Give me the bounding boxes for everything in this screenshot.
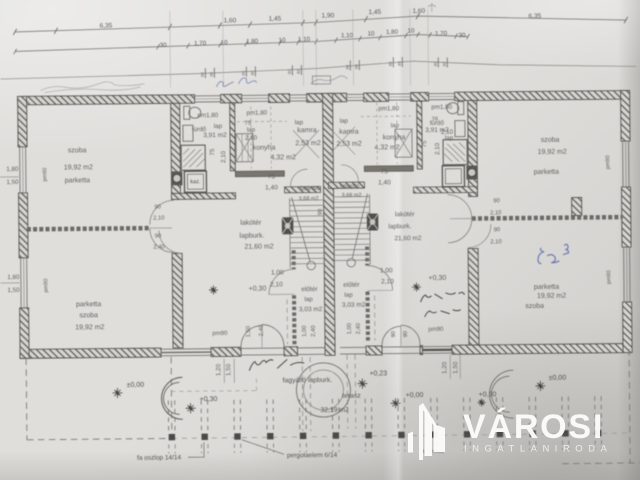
svg-text:pm1,80: pm1,80 xyxy=(197,112,218,119)
svg-text:4,32 m2: 4,32 m2 xyxy=(374,144,399,151)
svg-text:90: 90 xyxy=(494,227,501,233)
svg-text:1,50: 1,50 xyxy=(7,287,20,294)
svg-text:10: 10 xyxy=(408,28,416,35)
svg-text:2,40: 2,40 xyxy=(259,325,265,336)
svg-text:3,03 m2: 3,03 m2 xyxy=(342,302,366,309)
svg-text:lap: lap xyxy=(295,119,304,126)
svg-text:1,60: 1,60 xyxy=(412,8,425,15)
svg-text:75: 75 xyxy=(209,148,216,156)
svg-text:1,40: 1,40 xyxy=(378,179,391,186)
svg-text:19,92 m2: 19,92 m2 xyxy=(538,149,567,156)
svg-text:pm1,80: pm1,80 xyxy=(431,104,452,111)
svg-text:75: 75 xyxy=(268,173,276,180)
svg-text:80: 80 xyxy=(200,72,205,77)
svg-text:10: 10 xyxy=(368,30,376,37)
svg-text:80: 80 xyxy=(241,70,246,75)
svg-text:INGATLANIRODA: INGATLANIRODA xyxy=(464,444,612,455)
svg-text:1,80: 1,80 xyxy=(386,29,399,36)
svg-text:90: 90 xyxy=(318,209,324,216)
svg-text:pm90: pm90 xyxy=(43,279,49,293)
svg-text:1,00: 1,00 xyxy=(271,269,284,276)
svg-text:19,92 m2: 19,92 m2 xyxy=(537,293,566,300)
svg-text:lakótér: lakótér xyxy=(240,220,262,227)
svg-text:80: 80 xyxy=(354,64,359,69)
svg-text:lap: lap xyxy=(304,296,313,303)
svg-text:2,53 m2: 2,53 m2 xyxy=(336,141,361,148)
svg-text:2,40: 2,40 xyxy=(153,244,164,250)
svg-text:90: 90 xyxy=(493,198,500,204)
svg-text:2,10: 2,10 xyxy=(441,129,454,136)
svg-text:19,92 m2: 19,92 m2 xyxy=(75,324,104,331)
svg-text:1,90: 1,90 xyxy=(321,12,334,19)
svg-text:1,80: 1,80 xyxy=(246,38,259,45)
svg-text:1,10: 1,10 xyxy=(341,32,354,39)
svg-text:1,50: 1,50 xyxy=(225,363,232,376)
svg-text:2,40: 2,40 xyxy=(311,325,317,336)
svg-text:parketta: parketta xyxy=(65,177,90,184)
svg-text:1,20: 1,20 xyxy=(215,363,222,376)
svg-text:90: 90 xyxy=(154,205,161,211)
svg-text:2,40: 2,40 xyxy=(356,323,362,334)
svg-text:kamra: kamra xyxy=(297,127,317,134)
svg-text:előtér: előtér xyxy=(301,286,318,293)
svg-text:lakótér: lakótér xyxy=(395,211,415,218)
svg-text:lapburk.: lapburk. xyxy=(388,223,411,230)
svg-text:1,50: 1,50 xyxy=(452,361,459,374)
svg-text:3,68 m2: 3,68 m2 xyxy=(299,196,319,202)
svg-text:1,00: 1,00 xyxy=(380,267,393,274)
svg-text:VÁROSI: VÁROSI xyxy=(463,408,604,446)
svg-text:2,10: 2,10 xyxy=(153,215,164,221)
svg-text:75: 75 xyxy=(381,168,389,175)
svg-text:1,50: 1,50 xyxy=(6,179,19,186)
svg-text:lap: lap xyxy=(344,292,353,299)
svg-text:1,80: 1,80 xyxy=(6,166,19,173)
svg-text:lap: lap xyxy=(214,123,223,130)
svg-text:10: 10 xyxy=(221,39,229,46)
svg-text:3,68 m2: 3,68 m2 xyxy=(342,193,362,199)
svg-text:fa oszlop 14/14: fa oszlop 14/14 xyxy=(137,454,182,461)
svg-text:lap: lap xyxy=(340,118,349,125)
svg-text:fatároló: fatároló xyxy=(300,186,319,192)
svg-text:pm1,80: pm1,80 xyxy=(246,109,267,116)
svg-text:30: 30 xyxy=(459,32,467,39)
svg-text:2,10: 2,10 xyxy=(270,281,283,288)
svg-text:80: 80 xyxy=(433,61,438,66)
svg-text:fagyálló lapburk.: fagyálló lapburk. xyxy=(283,377,333,384)
svg-text:parketta: parketta xyxy=(76,301,101,308)
svg-text:előtér: előtér xyxy=(343,282,360,289)
svg-text:±0,00: ±0,00 xyxy=(549,375,567,382)
svg-text:2,10: 2,10 xyxy=(490,210,501,216)
svg-text:konyha: konyha xyxy=(383,134,406,141)
svg-text:1,70: 1,70 xyxy=(194,40,207,47)
svg-text:fatároló: fatároló xyxy=(340,184,359,190)
svg-text:80: 80 xyxy=(296,68,301,73)
svg-text:2,10: 2,10 xyxy=(434,142,441,155)
svg-text:1,00: 1,00 xyxy=(302,325,308,336)
svg-text:1,60: 1,60 xyxy=(224,17,237,24)
svg-text:lap: lap xyxy=(391,122,400,129)
svg-text:szoba: szoba xyxy=(525,303,544,310)
svg-text:szoba: szoba xyxy=(79,312,98,319)
svg-text:2,10: 2,10 xyxy=(490,239,501,245)
svg-text:terasz: terasz xyxy=(342,393,361,400)
svg-text:1,40: 1,40 xyxy=(265,184,278,191)
svg-text:10: 10 xyxy=(279,37,287,44)
svg-text:90: 90 xyxy=(391,331,397,337)
svg-text:+0,30: +0,30 xyxy=(200,396,218,403)
svg-text:3,91 m2: 3,91 m2 xyxy=(203,132,227,139)
svg-text:4,32 m2: 4,32 m2 xyxy=(271,154,296,161)
svg-text:1,10: 1,10 xyxy=(298,36,311,43)
svg-text:pergolaelem 6/14: pergolaelem 6/14 xyxy=(287,452,338,459)
svg-text:pm90: pm90 xyxy=(605,155,611,169)
svg-text:32,19 m2: 32,19 m2 xyxy=(320,407,349,414)
svg-text:1,45: 1,45 xyxy=(368,9,381,16)
svg-text:+0,30: +0,30 xyxy=(428,275,446,282)
svg-text:parketta: parketta xyxy=(534,169,559,176)
svg-text:19,92 m2: 19,92 m2 xyxy=(64,164,93,171)
svg-text:80: 80 xyxy=(442,61,447,66)
svg-text:pm90: pm90 xyxy=(42,168,48,182)
svg-text:76: 76 xyxy=(432,117,439,123)
svg-text:2,53 m2: 2,53 m2 xyxy=(295,140,320,147)
svg-text:80: 80 xyxy=(388,61,393,66)
svg-text:80: 80 xyxy=(287,69,292,74)
svg-text:21,60 m2: 21,60 m2 xyxy=(394,235,422,242)
svg-text:3,03 m2: 3,03 m2 xyxy=(299,306,323,313)
svg-text:21,60 m2: 21,60 m2 xyxy=(244,243,273,250)
svg-text:30: 30 xyxy=(160,42,168,49)
svg-text:2,10: 2,10 xyxy=(220,150,227,163)
svg-text:parketta: parketta xyxy=(534,284,559,291)
svg-text:konyha: konyha xyxy=(253,144,276,151)
svg-text:szoba: szoba xyxy=(68,147,87,154)
svg-text:pm90: pm90 xyxy=(606,270,612,284)
svg-text:1,50: 1,50 xyxy=(246,326,252,337)
svg-text:kamra: kamra xyxy=(339,129,359,136)
svg-text:90: 90 xyxy=(403,331,409,337)
svg-text:pm90: pm90 xyxy=(428,327,444,333)
svg-text:80: 80 xyxy=(397,61,402,66)
svg-text:80: 80 xyxy=(250,70,255,75)
svg-text:80: 80 xyxy=(345,64,350,69)
svg-text:szoba: szoba xyxy=(541,137,560,144)
svg-text:+0,30: +0,30 xyxy=(249,286,267,293)
svg-text:1,20: 1,20 xyxy=(441,361,448,374)
svg-text:±0,00: ±0,00 xyxy=(127,382,145,389)
svg-text:6,35: 6,35 xyxy=(529,13,542,20)
svg-text:2,10: 2,10 xyxy=(381,278,394,285)
svg-text:1,45: 1,45 xyxy=(269,16,282,23)
svg-text:1,80: 1,80 xyxy=(7,274,20,281)
svg-text:lapburk.: lapburk. xyxy=(239,233,264,240)
svg-text:pm90: pm90 xyxy=(212,331,228,337)
svg-text:6,35: 6,35 xyxy=(100,22,113,29)
svg-text:1,70: 1,70 xyxy=(435,30,448,37)
svg-text:75: 75 xyxy=(421,140,428,148)
svg-text:1,00: 1,00 xyxy=(347,323,353,334)
svg-text:80: 80 xyxy=(209,71,214,76)
svg-text:+0,23: +0,23 xyxy=(369,370,387,377)
svg-text:kaz.: kaz. xyxy=(190,179,201,185)
